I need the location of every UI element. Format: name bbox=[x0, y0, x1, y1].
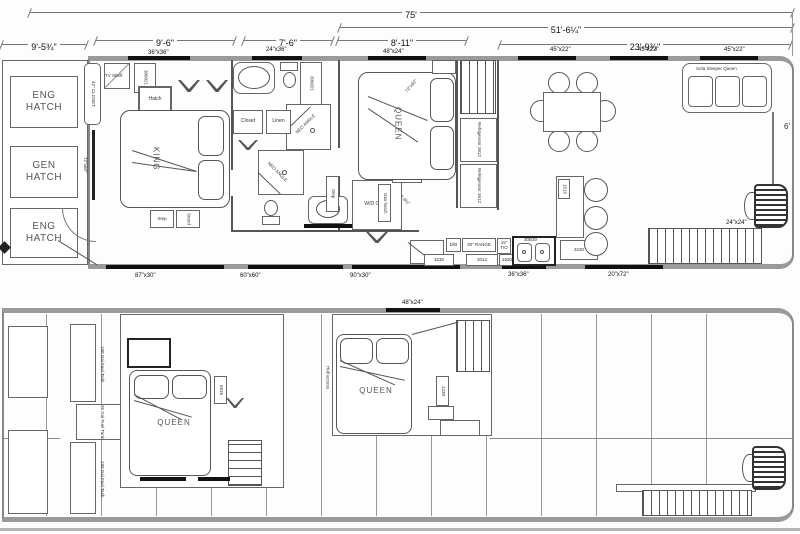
window-label: 87"x30" bbox=[135, 273, 156, 280]
nightstand: Stand bbox=[176, 210, 200, 228]
closet-label: Closet bbox=[241, 119, 255, 125]
window-bar bbox=[700, 56, 758, 60]
fuel-tank-label: 190 Gal Fuel Tank bbox=[99, 461, 104, 497]
shelf-cabinet-label: 306021 bbox=[143, 70, 148, 85]
window-label: 45"x22" bbox=[638, 47, 659, 54]
fuel-tank-2 bbox=[70, 442, 96, 514]
dim-overall-label: 75' bbox=[402, 10, 420, 21]
dim-cabin-label: 51'-6¼" bbox=[548, 25, 584, 36]
cabinet-label: 1230 bbox=[440, 386, 445, 396]
linen-label: Linen bbox=[272, 119, 284, 125]
window-bar bbox=[386, 308, 440, 312]
dock-edge-line bbox=[0, 528, 800, 531]
tall-oven-label: 15" T/O bbox=[498, 241, 510, 250]
hull-inner-line bbox=[772, 112, 774, 184]
jacuzzi-tub-inner bbox=[238, 66, 270, 89]
dim-bow: 9'-5¾" bbox=[2, 44, 86, 45]
window-bar bbox=[252, 56, 302, 60]
hull-access-label: Hull access bbox=[325, 366, 330, 389]
dim-bow-label: 9'-5¾" bbox=[28, 42, 59, 53]
dim-bath: 7'-6" bbox=[244, 40, 332, 41]
window-label: 20"x72" bbox=[608, 272, 629, 279]
pillow bbox=[198, 160, 224, 200]
floor-bar bbox=[198, 477, 230, 481]
cabinet: 1230 bbox=[436, 376, 449, 406]
drain-icon bbox=[522, 250, 526, 254]
cabinet: 6915 bbox=[214, 376, 227, 404]
queen-label: QUEEN bbox=[146, 418, 202, 427]
gas-hatch-label: Gas hatch bbox=[382, 193, 387, 214]
refrigerator-label: Refrigerator 3612 bbox=[476, 168, 481, 203]
fuel-tank-small-label: 36 Gal Fuel Tank bbox=[99, 405, 104, 439]
window-bar bbox=[106, 265, 224, 269]
king-bed-name: KING bbox=[150, 136, 162, 182]
pillow bbox=[198, 116, 224, 156]
base-cabinet: 3230 bbox=[424, 254, 454, 266]
shower-drain-icon bbox=[310, 128, 315, 133]
sofa-label: Sofa Sleeper Queen bbox=[696, 67, 737, 72]
sofa-cushion bbox=[742, 76, 767, 107]
bath-cabinet: 306021 bbox=[300, 62, 322, 106]
door-size: 72"x60" bbox=[79, 136, 90, 194]
gen-hatch-label: GEN HATCH bbox=[21, 160, 67, 185]
cabinet-label: 1530 bbox=[502, 258, 512, 263]
dining-chair bbox=[548, 72, 570, 94]
hull-access-name: Hull access bbox=[322, 356, 332, 400]
window-label: 90"x30" bbox=[350, 273, 371, 280]
window-label: 45"x22" bbox=[550, 47, 571, 54]
pillow bbox=[134, 375, 169, 399]
pillow bbox=[430, 126, 454, 170]
fuel-tank-2-name: 190 Gal Fuel Tank bbox=[96, 444, 107, 514]
window-label: 36"x36" bbox=[508, 272, 529, 279]
bar-stool bbox=[584, 178, 608, 202]
galley-cabinet-label: D/B bbox=[450, 243, 458, 248]
stairs-bedroom-a bbox=[228, 440, 262, 486]
dim-bedroom1-label: 9'-6" bbox=[153, 38, 177, 49]
floor-hatch-label: Hatch bbox=[148, 97, 161, 103]
toilet-bowl bbox=[264, 200, 278, 216]
dim-salon: 23'-9¾" bbox=[500, 44, 790, 45]
shower-neo-angle bbox=[286, 104, 331, 150]
cabinet-label: 3012 bbox=[477, 258, 487, 263]
gas-hatch: Gas hatch bbox=[378, 184, 391, 222]
wall bbox=[231, 196, 233, 232]
window-bar bbox=[610, 56, 668, 60]
side-locker bbox=[8, 326, 48, 398]
dim-overall: 75' bbox=[30, 12, 792, 13]
dining-chair bbox=[548, 130, 570, 152]
stairs-to-lower-deck bbox=[460, 60, 496, 114]
helm-console-lower bbox=[752, 446, 786, 490]
range: 30" RANGE bbox=[462, 238, 496, 252]
fuel-tank-name: 190 Gal Fuel Tank bbox=[96, 326, 107, 402]
window-bar bbox=[585, 265, 663, 269]
pillow bbox=[430, 78, 454, 122]
pillow bbox=[172, 375, 207, 399]
dim-bedroom2: 8'-11" bbox=[338, 40, 466, 41]
queen-bed-name: QUEEN bbox=[392, 100, 404, 148]
fuel-tank-label: 190 Gal Fuel Tank bbox=[99, 346, 104, 382]
window-label: 45"x22" bbox=[724, 47, 745, 54]
aft-stairs bbox=[648, 228, 762, 264]
stairs-bedroom-b bbox=[456, 320, 490, 372]
side-locker bbox=[8, 430, 48, 514]
window-bar bbox=[368, 56, 426, 60]
step-box: Step bbox=[150, 210, 174, 228]
bar-stool bbox=[584, 232, 608, 256]
pillow bbox=[376, 338, 409, 364]
range-label: 30" RANGE bbox=[467, 243, 491, 248]
head-cabinet bbox=[432, 60, 456, 74]
fuel-tank bbox=[70, 324, 96, 402]
fuel-tank-small-name: 36 Gal Fuel Tank bbox=[96, 405, 107, 439]
galley-cabinet: D/B bbox=[446, 238, 461, 252]
dim-bedroom1: 9'-6" bbox=[96, 40, 234, 41]
window-bar bbox=[128, 56, 190, 60]
bath-cabinet-label: 306021 bbox=[309, 76, 314, 91]
king-label: KING bbox=[152, 147, 161, 171]
queen-label: QUEEN bbox=[394, 107, 403, 140]
deck-center-line bbox=[490, 438, 792, 439]
wall bbox=[338, 60, 340, 148]
aft-stairs-lower bbox=[642, 490, 752, 516]
houseboat-floor-plan: 75' 51'-6¼" 9'-5¾" 9'-6" 7'-6" 8'-11" 23… bbox=[0, 0, 800, 534]
window-label: 24"x24" bbox=[726, 220, 747, 227]
toilet-bowl bbox=[283, 72, 296, 88]
hull-hatch bbox=[127, 338, 171, 368]
bar-stool bbox=[584, 206, 608, 230]
wall bbox=[456, 60, 458, 208]
step-box bbox=[428, 406, 454, 420]
upper-deck-plan: 75' 51'-6¼" 9'-5¾" 9'-6" 7'-6" 8'-11" 23… bbox=[0, 0, 800, 300]
nightstand-label: Stand bbox=[186, 213, 191, 225]
window-bar bbox=[518, 56, 576, 60]
gen-hatch: GEN HATCH bbox=[10, 146, 78, 198]
cabinet-label: 6915 bbox=[218, 385, 223, 395]
drain-icon bbox=[540, 250, 544, 254]
cabinet-label: 3230 bbox=[434, 258, 444, 263]
window-label: 48"x24" bbox=[402, 300, 423, 307]
dim-bedroom2-label: 8'-11" bbox=[388, 38, 416, 49]
window-label: 60"x60" bbox=[240, 273, 261, 280]
lower-deck-plan: 48"x24" 190 Gal Fuel Tank 36 Gal Fuel Ta… bbox=[0, 300, 800, 534]
sink-label: 30B30 bbox=[524, 238, 537, 243]
toilet-tank bbox=[262, 216, 280, 225]
bar-cabinet-label: 1515 bbox=[562, 184, 567, 194]
eng-hatch: ENG HATCH bbox=[10, 76, 78, 128]
queen-label: QUEEN bbox=[348, 386, 404, 395]
refrigerator-2: Refrigerator 3612 bbox=[460, 164, 497, 208]
eng-hatch-label: ENG HATCH bbox=[21, 90, 67, 115]
linen-closet: Linen bbox=[266, 110, 291, 134]
door-size-label: 72"x60" bbox=[82, 157, 87, 172]
toilet-tank bbox=[280, 62, 298, 71]
closet-42-label: 42" CLOSET bbox=[90, 81, 95, 107]
step-label: Step bbox=[157, 217, 166, 222]
step-label: Step bbox=[330, 189, 335, 198]
window-label: 48"x24" bbox=[383, 49, 404, 56]
bar-cabinet: 1515 bbox=[558, 179, 570, 199]
sofa-cushion bbox=[715, 76, 740, 107]
tv-shelf: TV Shelf bbox=[104, 63, 130, 89]
sofa-cushion bbox=[688, 76, 713, 107]
window-label: 24"x36" bbox=[266, 47, 287, 54]
wd-closet: W/D Closet bbox=[352, 180, 402, 230]
wall bbox=[233, 230, 419, 232]
closet: Closet bbox=[233, 110, 263, 134]
vanity-base-bar bbox=[304, 224, 352, 228]
dim-cabin: 51'-6¼" bbox=[340, 27, 792, 28]
tall-oven: 15" T/O bbox=[497, 238, 511, 254]
tv-shelf-label: TV Shelf bbox=[105, 73, 122, 78]
helm-console bbox=[754, 184, 788, 228]
step-box bbox=[440, 420, 480, 436]
closet-42: 42" CLOSET bbox=[84, 63, 101, 125]
base-cabinet: 3012 bbox=[466, 254, 498, 266]
refrigerator-label: Refrigerator 3612 bbox=[476, 122, 481, 157]
dim-extension-line bbox=[792, 14, 793, 56]
step-box: Step bbox=[326, 176, 339, 212]
floor-bar bbox=[140, 477, 186, 481]
wall bbox=[497, 60, 499, 210]
window-bar bbox=[248, 265, 343, 269]
sliding-door-bar bbox=[92, 130, 95, 200]
dining-chair bbox=[576, 72, 598, 94]
dining-table bbox=[543, 92, 601, 132]
cabinet-label: 3230 bbox=[574, 248, 584, 253]
pillow bbox=[340, 338, 373, 364]
refrigerator: Refrigerator 3612 bbox=[460, 118, 497, 162]
dining-chair bbox=[576, 130, 598, 152]
